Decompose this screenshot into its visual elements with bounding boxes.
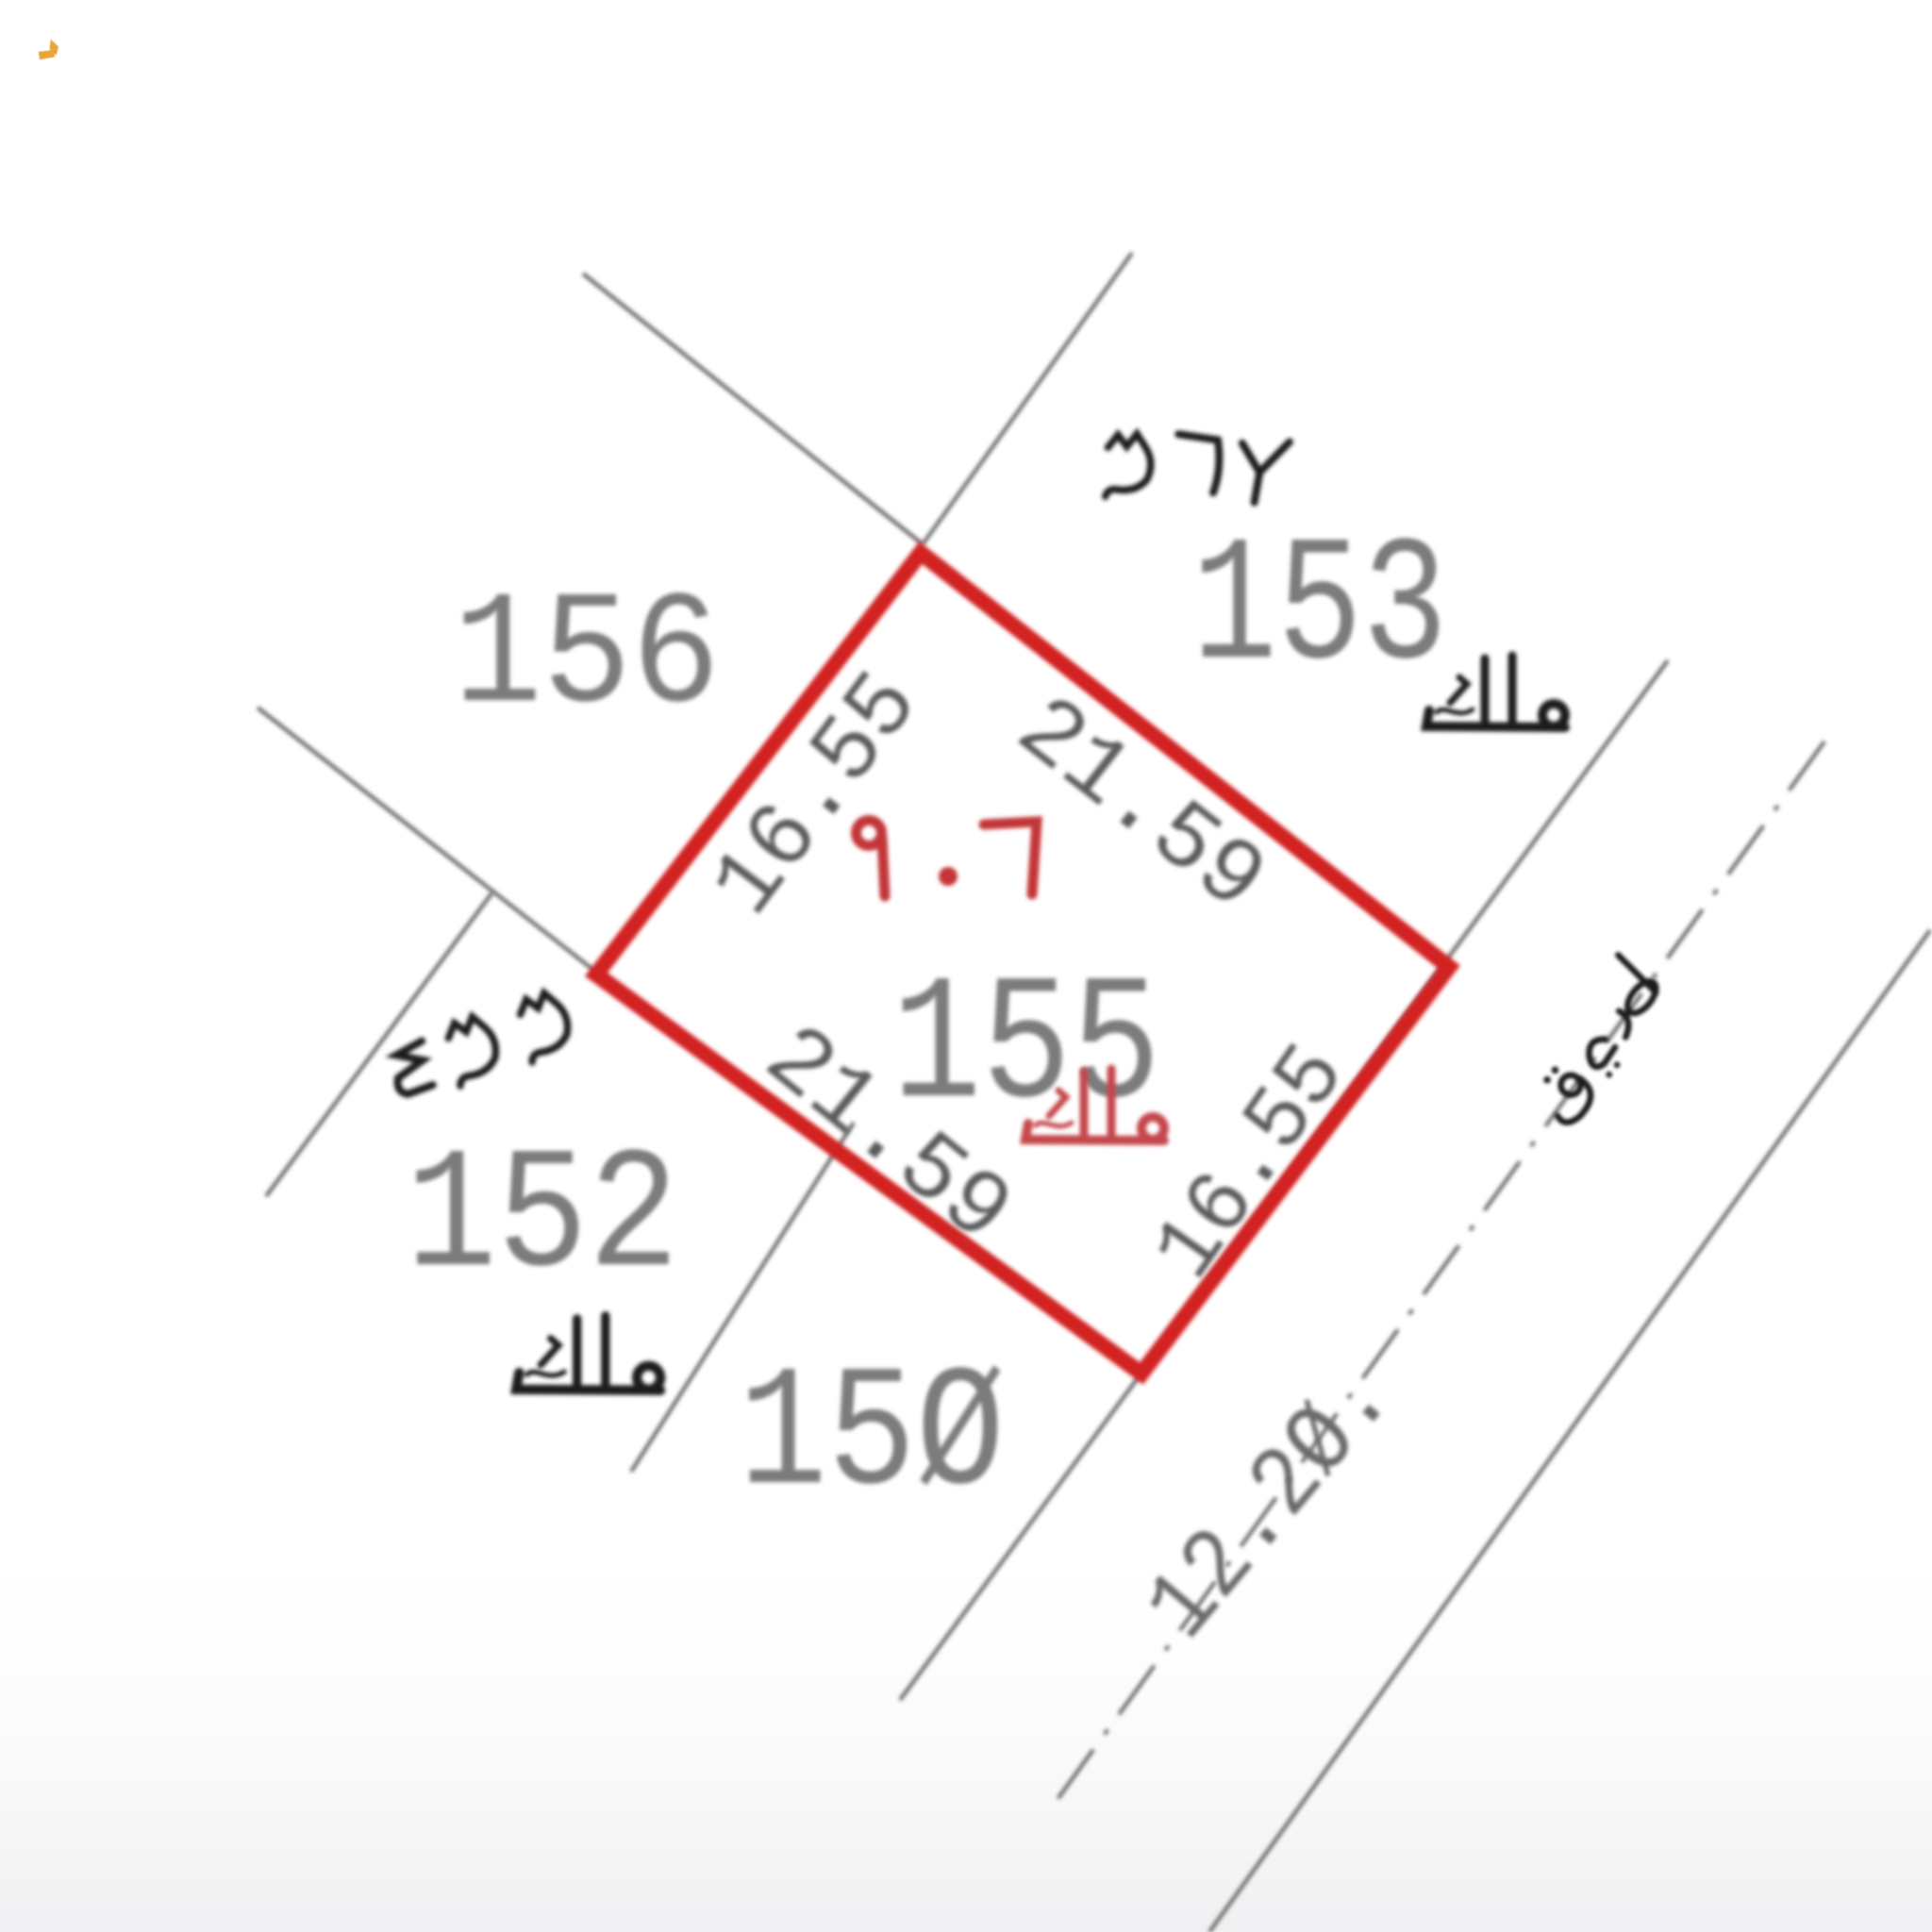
svg-text:15Ø: 15Ø [739,1339,1005,1534]
svg-text:153: 153 [1192,509,1448,710]
svg-text:156: 156 [454,567,721,749]
svg-text:152: 152 [406,1121,679,1316]
